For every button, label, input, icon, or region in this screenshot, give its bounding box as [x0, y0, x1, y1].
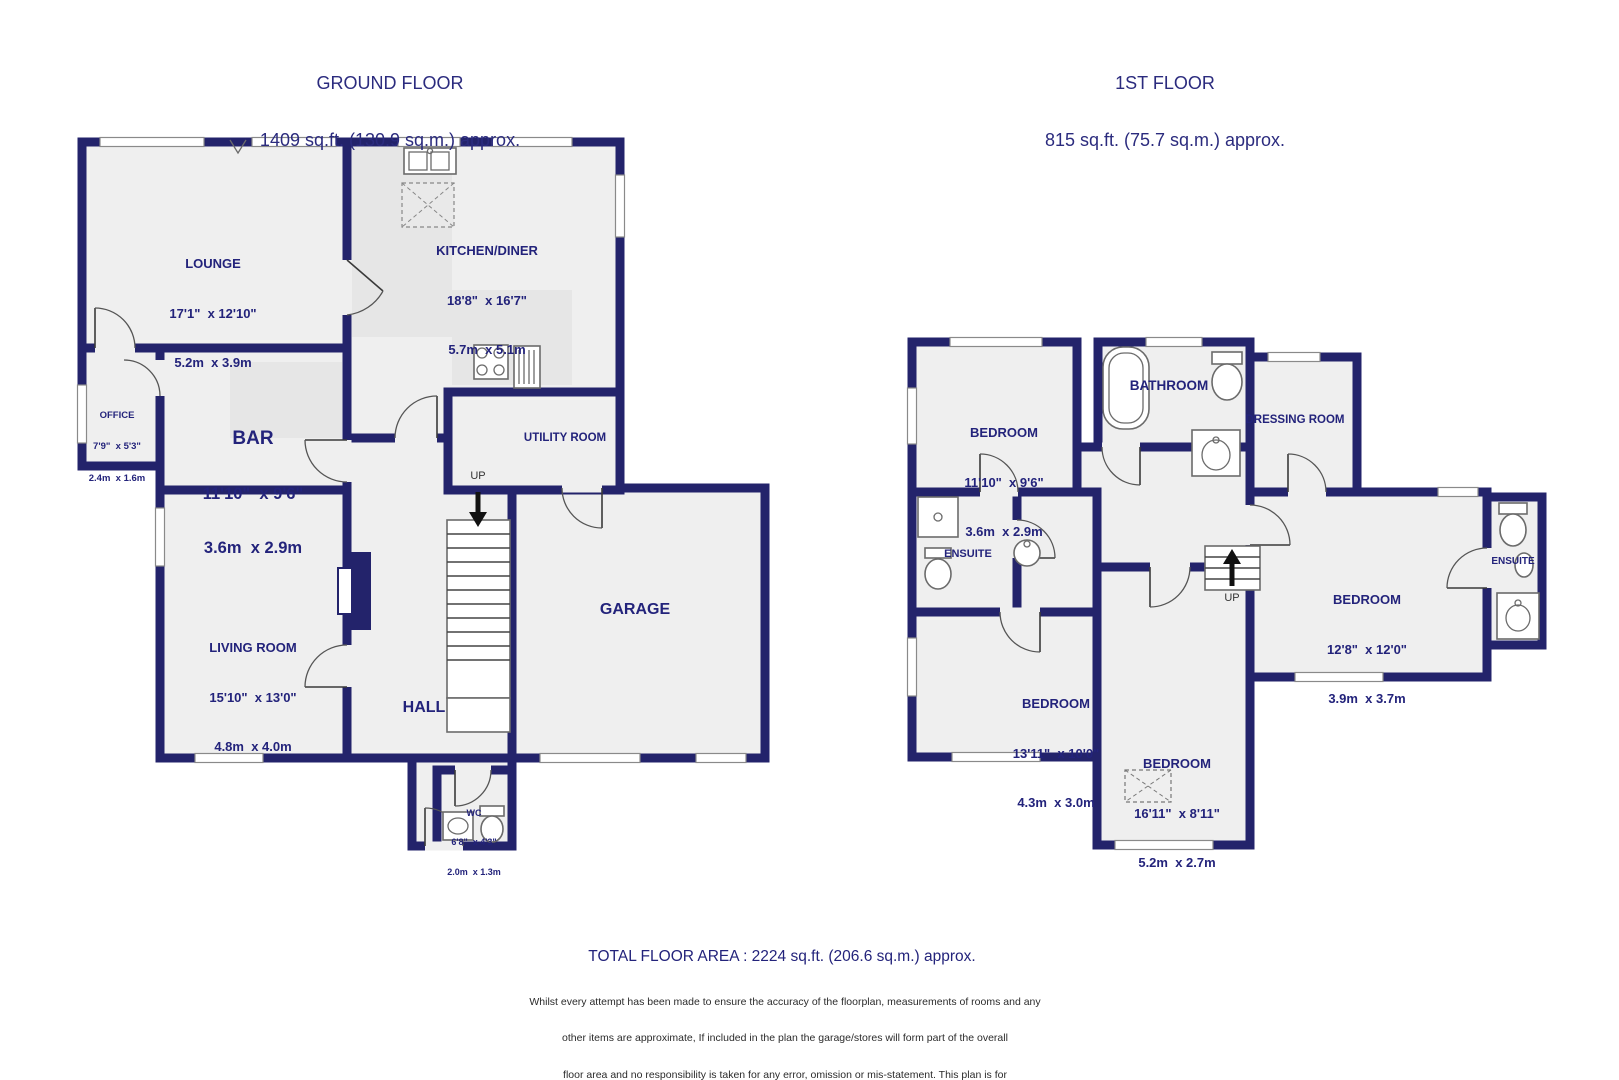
- ensuite-right-toilet-icon: [1499, 503, 1527, 546]
- total-floor-area: TOTAL FLOOR AREA : 2224 sq.ft. (206.6 sq…: [588, 948, 975, 966]
- bedroom-right-label: BEDROOM 12'8" x 12'0" 3.9m x 3.7m: [1327, 558, 1407, 724]
- garage-room: [512, 488, 765, 758]
- utility-label: UTILITY ROOM: [524, 432, 606, 445]
- first-up-label: UP: [1224, 592, 1239, 604]
- wc-label: WC 6'8" x 4'3" 2.0m x 1.3m: [447, 789, 501, 888]
- living-room-label: LIVING ROOM 15'10" x 13'0" 4.8m x 4.0m: [209, 606, 296, 772]
- dressing-room-label: DRESSING ROOM: [1245, 414, 1344, 427]
- ground-up-label: UP: [470, 470, 485, 482]
- bathroom-toilet-icon: [1212, 352, 1242, 400]
- first-floor-title-line2: 815 sq.ft. (75.7 sq.m.) approx.: [1045, 131, 1285, 150]
- bedroom-back-mid-label: BEDROOM 16'11" x 8'11" 5.2m x 2.7m: [1134, 722, 1220, 888]
- ground-floor-title-line1: GROUND FLOOR: [260, 74, 520, 93]
- disclaimer: Whilst every attempt has been made to en…: [529, 971, 1040, 1080]
- office-label: OFFICE 7'9" x 5'3" 2.4m x 1.6m: [89, 390, 146, 494]
- ensuite-left-shower-icon: [918, 497, 958, 537]
- bedroom-front-label: BEDROOM 11'10" x 9'6" 3.6m x 2.9m: [964, 391, 1043, 557]
- ensuite-right-sink-icon: [1497, 593, 1539, 639]
- ensuite-right-label: ENSUITE: [1491, 556, 1534, 567]
- floorplan-page: GROUND FLOOR 1409 sq.ft. (130.9 sq.m.) a…: [0, 0, 1619, 1080]
- kitchen-diner-label: KITCHEN/DINER 18'8" x 16'7" 5.7m x 5.1m: [436, 209, 538, 375]
- bar-label: BAR 11'10" x 9'6" 3.6m x 2.9m: [203, 394, 304, 574]
- hall-label: HALL: [403, 699, 446, 717]
- lounge-label: LOUNGE 17'1" x 12'10" 5.2m x 3.9m: [169, 222, 256, 388]
- first-stairs-icon: [1205, 546, 1260, 590]
- bathroom-sink-icon: [1192, 430, 1240, 476]
- first-floor-title-line1: 1ST FLOOR: [1045, 74, 1285, 93]
- ground-floor-title: GROUND FLOOR 1409 sq.ft. (130.9 sq.m.) a…: [260, 36, 520, 169]
- ground-floor-title-line2: 1409 sq.ft. (130.9 sq.m.) approx.: [260, 131, 520, 150]
- garage-label: GARAGE: [600, 601, 670, 619]
- first-floor-title: 1ST FLOOR 815 sq.ft. (75.7 sq.m.) approx…: [1045, 36, 1285, 169]
- bathroom-label: BATHROOM: [1130, 379, 1209, 394]
- ground-stairs-icon: [447, 492, 510, 732]
- ensuite-left-label: ENSUITE: [944, 548, 992, 560]
- bedroom-back-left-label: BEDROOM 13'11" x 10'0" 4.3m x 3.0m: [1013, 662, 1099, 828]
